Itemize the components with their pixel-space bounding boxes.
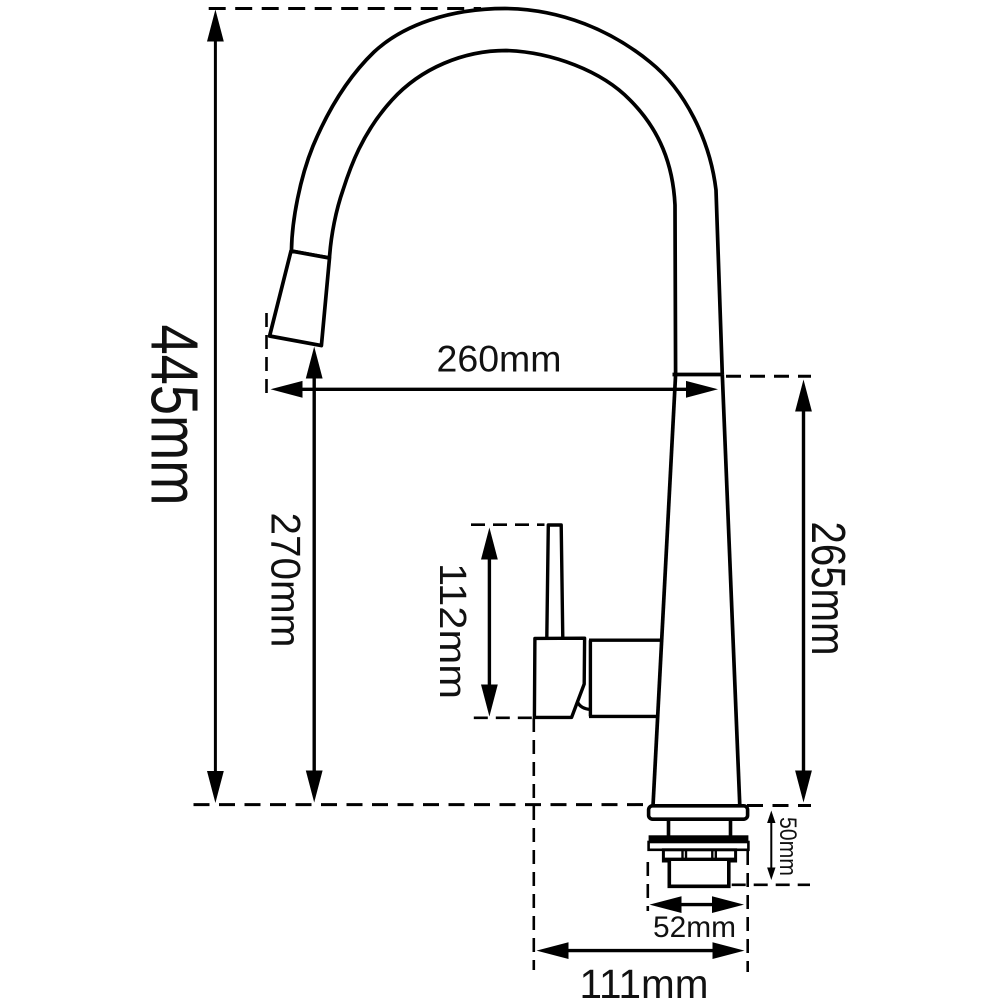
svg-text:445mm: 445mm — [137, 325, 212, 506]
svg-text:50mm: 50mm — [774, 817, 801, 876]
svg-text:265mm: 265mm — [801, 522, 854, 656]
svg-text:260mm: 260mm — [437, 338, 562, 380]
svg-text:52mm: 52mm — [653, 911, 736, 944]
svg-text:270mm: 270mm — [263, 513, 310, 648]
svg-text:112mm: 112mm — [431, 563, 473, 699]
svg-text:111mm: 111mm — [580, 961, 709, 1000]
